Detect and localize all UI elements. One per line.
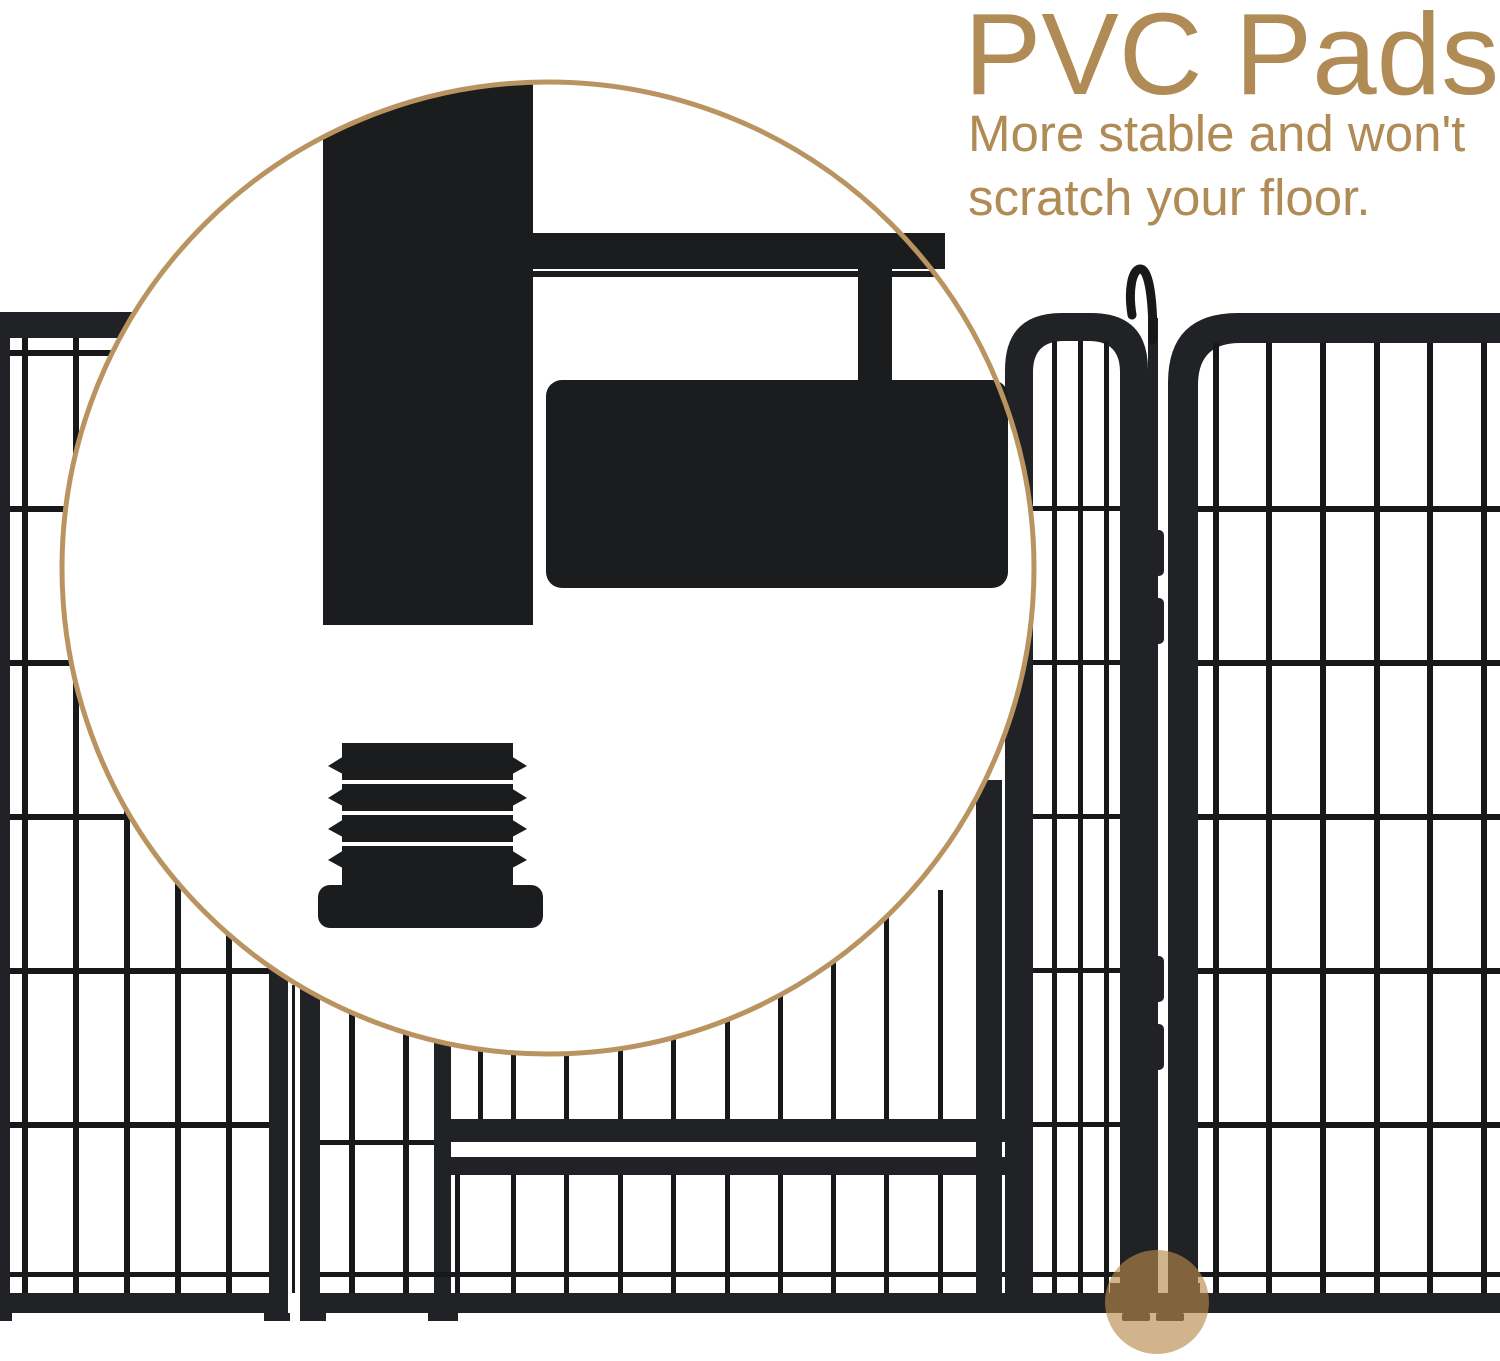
subheadline-line-1: More stable and won't [968,104,1465,164]
pvc-pad-base [318,885,543,928]
closeup-connector [858,233,892,383]
closeup-bottom-rail [546,380,1008,588]
product-feature-image: PVC Pads More stable and won't scratch y… [0,0,1500,1361]
narrow-folded-panel [1005,313,1148,1313]
closeup-frame-post [323,70,533,625]
subheadline-line-2: scratch your floor. [968,168,1371,228]
right-panel [1168,313,1500,1313]
door-threshold-bar [451,1119,1005,1142]
pvc-pad [318,743,543,928]
headline: PVC Pads [964,0,1499,112]
panel-mid-rail [451,1157,1005,1175]
foot-highlight-dot [1105,1250,1209,1354]
